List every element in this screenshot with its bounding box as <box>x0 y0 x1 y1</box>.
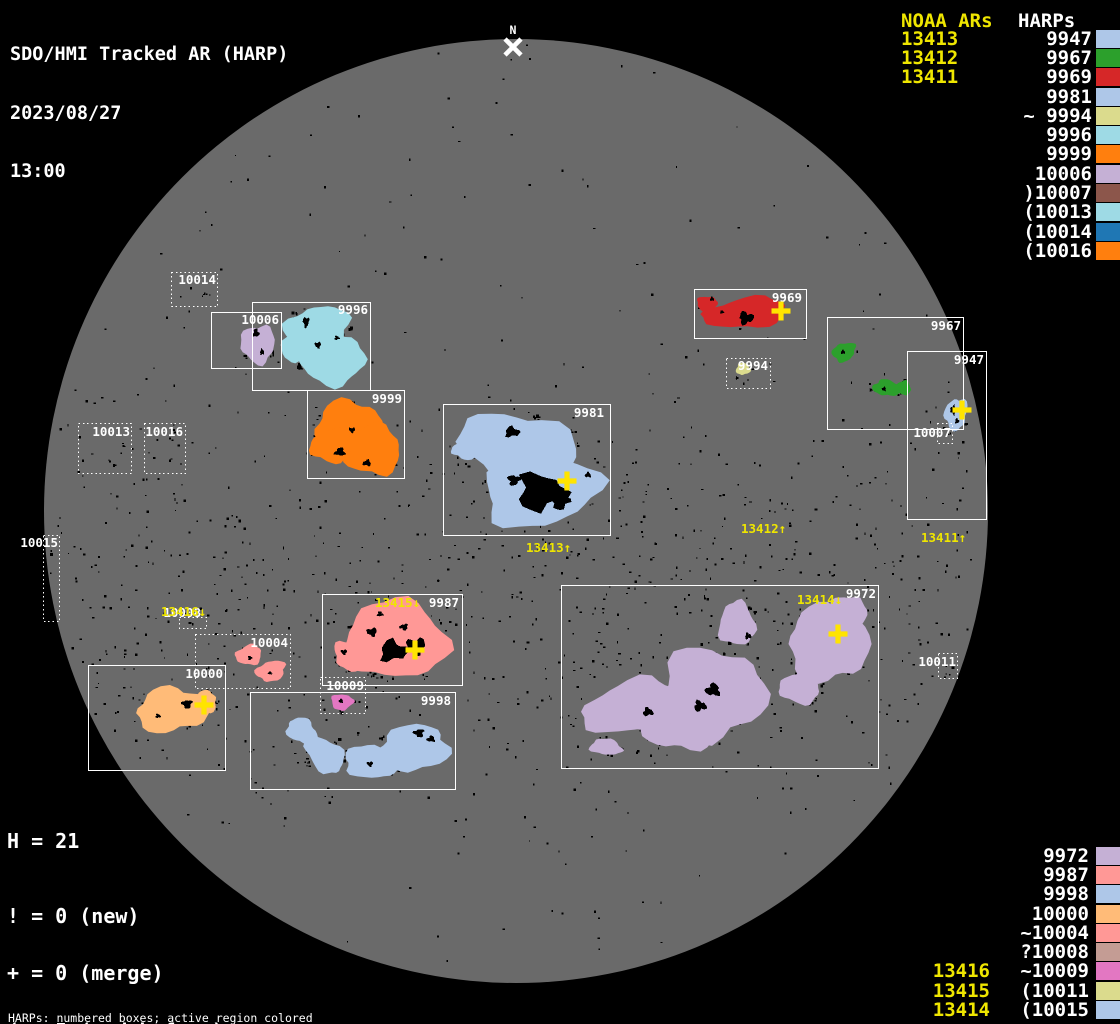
speck <box>685 356 687 358</box>
speck <box>966 423 968 425</box>
speck <box>324 572 326 575</box>
speck <box>315 556 316 557</box>
speck <box>177 502 178 504</box>
speck <box>189 310 191 312</box>
speck <box>468 466 471 468</box>
speck <box>367 674 368 676</box>
speck <box>884 563 885 564</box>
noaa-label-13415: 13415↓ <box>375 595 420 610</box>
speck <box>466 516 468 518</box>
speck <box>785 601 787 603</box>
speck <box>615 801 617 802</box>
speck <box>910 443 912 444</box>
speck <box>270 356 272 358</box>
speck <box>849 505 851 506</box>
speck <box>421 429 422 432</box>
speck <box>647 484 649 485</box>
speck <box>264 604 266 607</box>
speck <box>560 589 561 590</box>
speck <box>534 827 536 828</box>
speck <box>75 577 77 579</box>
speck <box>263 574 264 576</box>
speck <box>736 127 737 128</box>
speck <box>170 554 172 556</box>
speck <box>524 816 526 818</box>
speck <box>207 615 209 617</box>
speck <box>379 738 382 740</box>
speck <box>777 592 780 594</box>
speck <box>173 493 175 495</box>
harp-color-swatch <box>1096 126 1120 144</box>
speck <box>544 565 546 567</box>
speck <box>296 312 297 314</box>
speck <box>143 479 145 482</box>
speck <box>606 623 608 625</box>
speck <box>469 642 470 643</box>
speck <box>534 577 536 578</box>
speck <box>500 285 502 287</box>
speck <box>643 829 644 831</box>
harp-color-swatch <box>1096 165 1120 183</box>
speck <box>580 612 582 613</box>
speck <box>618 653 621 654</box>
speck <box>502 545 504 546</box>
speck <box>338 546 341 547</box>
speck <box>140 757 141 759</box>
speck <box>699 450 701 452</box>
speck <box>285 415 287 416</box>
speck <box>366 706 368 708</box>
speck <box>271 622 273 625</box>
harp-box-label-10014: 10014 <box>178 272 216 287</box>
speck <box>238 599 241 600</box>
speck <box>764 609 766 611</box>
speck <box>891 500 892 502</box>
speck <box>399 790 401 792</box>
speck <box>628 812 629 814</box>
speck <box>179 555 181 556</box>
speck <box>192 623 193 625</box>
speck <box>671 498 672 499</box>
speck <box>147 511 149 513</box>
speck <box>606 736 608 738</box>
speck <box>349 586 352 587</box>
speck <box>913 693 915 695</box>
speck <box>689 570 691 571</box>
harp-box-label-9996: 9996 <box>338 302 368 317</box>
speck <box>339 251 340 252</box>
speck <box>822 683 824 685</box>
speck <box>284 817 286 820</box>
speck <box>542 574 544 576</box>
harp-color-swatch <box>1096 982 1120 1000</box>
speck <box>138 699 140 700</box>
speck <box>506 749 509 751</box>
speck <box>356 581 358 583</box>
noaa-ar-number: 13414 <box>920 999 990 1021</box>
legend-top-row: ~ 9994 <box>901 106 1120 125</box>
speck <box>489 746 490 748</box>
speck <box>484 539 486 541</box>
speck <box>659 642 661 643</box>
speck <box>619 664 622 665</box>
speck <box>91 453 93 454</box>
speck <box>545 668 546 670</box>
speck <box>360 560 362 562</box>
speck <box>291 740 293 743</box>
speck <box>859 509 860 510</box>
speck <box>335 613 336 615</box>
speck <box>592 614 594 615</box>
speck <box>133 669 135 670</box>
speck <box>603 538 604 540</box>
speck <box>222 557 223 559</box>
speck <box>609 587 611 588</box>
speck <box>856 485 857 487</box>
speck <box>178 445 181 447</box>
speck <box>471 503 473 505</box>
speck <box>315 407 317 408</box>
speck <box>958 458 959 459</box>
legend-bottom: 99729987999810000~10004?1000813416~10009… <box>920 846 1120 1020</box>
speck <box>726 464 728 465</box>
speck <box>99 659 101 661</box>
speck <box>818 574 821 576</box>
speck <box>855 538 857 540</box>
speck <box>918 640 921 641</box>
speck <box>919 601 920 602</box>
speck <box>611 755 614 758</box>
speck <box>563 363 564 365</box>
north-label: N <box>510 23 517 37</box>
speck <box>244 355 248 357</box>
harp-color-swatch <box>1096 223 1120 241</box>
speck <box>710 625 712 627</box>
speck <box>440 555 441 557</box>
speck <box>312 424 315 425</box>
speck <box>426 676 428 677</box>
speck <box>641 521 643 523</box>
speck <box>956 508 958 511</box>
speck <box>696 557 698 558</box>
speck <box>229 823 230 824</box>
speck <box>684 598 686 601</box>
speck <box>826 237 829 239</box>
speck <box>576 686 578 688</box>
speck <box>617 613 619 615</box>
harp-color-swatch <box>1096 107 1120 125</box>
speck <box>597 938 599 940</box>
speck <box>484 677 485 680</box>
speck <box>255 782 257 784</box>
harp-color-swatch <box>1096 49 1120 67</box>
speck <box>155 618 156 619</box>
speck <box>511 594 513 595</box>
speck <box>253 749 255 750</box>
speck <box>454 545 456 546</box>
speck <box>466 552 468 554</box>
speck <box>757 657 760 659</box>
speck <box>876 527 877 530</box>
speck <box>813 440 815 442</box>
speck <box>123 687 125 689</box>
legend-top-row: )10007 <box>901 183 1120 202</box>
speck <box>215 447 216 448</box>
speck <box>408 505 410 507</box>
speck <box>61 532 62 534</box>
speck <box>397 491 398 493</box>
noaa-label-13411: 13411↑ <box>921 530 966 545</box>
speck <box>501 340 503 342</box>
speck <box>245 374 246 375</box>
speck <box>83 554 85 556</box>
speck <box>347 626 350 629</box>
speck <box>613 556 615 558</box>
speck <box>293 652 295 654</box>
speck <box>565 864 567 865</box>
speck <box>815 710 818 712</box>
speck <box>117 711 119 713</box>
speck <box>210 520 212 522</box>
speck <box>780 727 782 729</box>
speck <box>829 571 830 574</box>
speck <box>791 623 794 625</box>
speck <box>264 456 265 458</box>
speck <box>513 641 515 643</box>
speck <box>183 570 185 573</box>
speck <box>946 564 948 567</box>
speck <box>424 534 426 536</box>
speck <box>899 608 900 610</box>
harp-box-label-10013: 10013 <box>92 424 130 439</box>
speck <box>860 483 863 485</box>
speck <box>598 918 600 919</box>
speck <box>290 490 291 492</box>
speck <box>646 491 647 492</box>
speck <box>612 441 613 443</box>
speck <box>504 569 505 571</box>
noaa-label-13416: 13416↓ <box>161 604 206 619</box>
speck <box>533 566 534 567</box>
speck <box>699 875 700 876</box>
speck <box>641 531 643 533</box>
legend-top-row: 9996 <box>901 125 1120 144</box>
speck <box>89 607 91 608</box>
speck <box>617 641 618 644</box>
speck <box>821 692 823 694</box>
chart-time: 13:00 <box>10 162 288 182</box>
speck <box>402 570 403 572</box>
speck <box>98 556 100 558</box>
speck <box>635 461 637 463</box>
speck <box>667 488 669 490</box>
speck <box>221 821 224 823</box>
speck <box>689 219 691 222</box>
speck <box>381 676 384 678</box>
speck <box>300 507 301 509</box>
speck <box>807 165 809 167</box>
harp-box-label-9987: 9987 <box>429 595 459 610</box>
speck <box>780 642 782 644</box>
speck <box>371 676 372 678</box>
speck <box>294 753 297 754</box>
speck <box>297 762 299 764</box>
speck <box>540 526 541 529</box>
speck <box>559 850 560 852</box>
speck <box>277 710 278 712</box>
speck <box>213 556 216 558</box>
speck <box>917 556 919 558</box>
speck <box>249 543 250 546</box>
speck <box>149 452 150 454</box>
speck <box>912 525 914 526</box>
legend-top: NOAA ARs HARPs 1341399471341299671341199… <box>901 10 1120 261</box>
speck <box>719 742 721 745</box>
speck <box>881 659 883 660</box>
speck <box>628 587 630 589</box>
speck <box>357 734 358 737</box>
speck <box>706 569 707 571</box>
speck <box>927 524 929 526</box>
speck <box>309 766 312 768</box>
speck <box>935 623 938 625</box>
speck <box>145 378 147 380</box>
speck <box>773 713 776 715</box>
speck <box>512 596 513 598</box>
speck <box>677 613 678 615</box>
speck <box>237 566 240 567</box>
speck <box>805 808 807 810</box>
speck <box>945 571 947 573</box>
speck <box>98 571 100 572</box>
speck <box>245 740 247 743</box>
legend-top-row: (10013 <box>901 203 1120 222</box>
speck <box>371 592 372 593</box>
speck <box>785 852 787 854</box>
speck <box>283 547 284 550</box>
harp-color-swatch <box>1096 905 1120 923</box>
speck <box>606 594 607 596</box>
speck <box>209 294 210 295</box>
speck <box>272 614 273 616</box>
speck <box>147 607 148 609</box>
speck <box>773 621 775 622</box>
speck <box>581 698 582 700</box>
speck <box>740 328 742 330</box>
speck <box>870 535 872 537</box>
speck <box>146 479 147 481</box>
speck <box>851 721 853 723</box>
speck <box>488 397 491 398</box>
speck <box>510 59 511 61</box>
speck <box>512 556 514 558</box>
speck <box>188 622 191 624</box>
speck <box>424 679 425 680</box>
speck <box>247 693 249 695</box>
speck <box>675 534 677 537</box>
speck <box>791 658 792 660</box>
speck <box>533 784 535 786</box>
speck <box>744 497 746 498</box>
speck <box>915 448 916 450</box>
speck <box>575 718 576 719</box>
speck <box>131 545 134 547</box>
speck <box>747 379 748 381</box>
speck <box>948 392 950 393</box>
speck <box>930 421 931 423</box>
speck <box>759 566 761 568</box>
speck <box>114 730 116 732</box>
speck <box>299 499 301 501</box>
speck <box>721 558 723 560</box>
speck <box>619 510 621 512</box>
speck <box>723 494 725 496</box>
speck <box>359 491 361 492</box>
speck <box>879 294 881 296</box>
speck <box>786 773 787 775</box>
speck <box>676 166 677 168</box>
speck <box>122 443 124 444</box>
speck <box>639 556 640 557</box>
speck <box>754 611 757 613</box>
speck <box>231 589 233 592</box>
speck <box>373 533 374 535</box>
speck <box>220 575 222 576</box>
speck <box>483 618 485 619</box>
harp-color-swatch <box>1096 885 1120 903</box>
speck <box>712 766 713 767</box>
speck <box>651 293 654 295</box>
speck <box>682 537 683 539</box>
speck <box>383 735 385 738</box>
speck <box>247 597 248 598</box>
harp-color-swatch <box>1096 184 1120 202</box>
speck <box>593 559 595 560</box>
speck <box>789 525 791 528</box>
speck <box>410 195 411 196</box>
harp-box-label-10004: 10004 <box>250 635 288 650</box>
speck <box>339 532 341 534</box>
harp-box-label-10015: 10015 <box>20 535 58 550</box>
speck <box>946 673 947 674</box>
speck <box>810 521 812 523</box>
speck <box>388 547 390 549</box>
speck <box>906 721 908 723</box>
legend-bottom-row: 13416~10009 <box>920 962 1120 981</box>
speck <box>364 235 365 237</box>
speck <box>864 579 866 581</box>
speck <box>521 598 523 600</box>
speck <box>68 553 69 554</box>
speck <box>859 244 860 246</box>
speck <box>687 505 689 506</box>
speck <box>423 674 424 676</box>
speck <box>133 483 135 485</box>
speck <box>309 214 311 216</box>
speck <box>616 660 618 661</box>
speck <box>166 757 167 760</box>
speck <box>842 419 844 421</box>
speck <box>84 487 85 488</box>
speck <box>868 762 869 763</box>
speck <box>634 588 635 590</box>
speck <box>596 809 597 811</box>
speck <box>105 522 107 524</box>
speck <box>769 544 771 546</box>
speck <box>570 724 572 725</box>
speck <box>603 612 604 613</box>
speck <box>931 675 933 676</box>
